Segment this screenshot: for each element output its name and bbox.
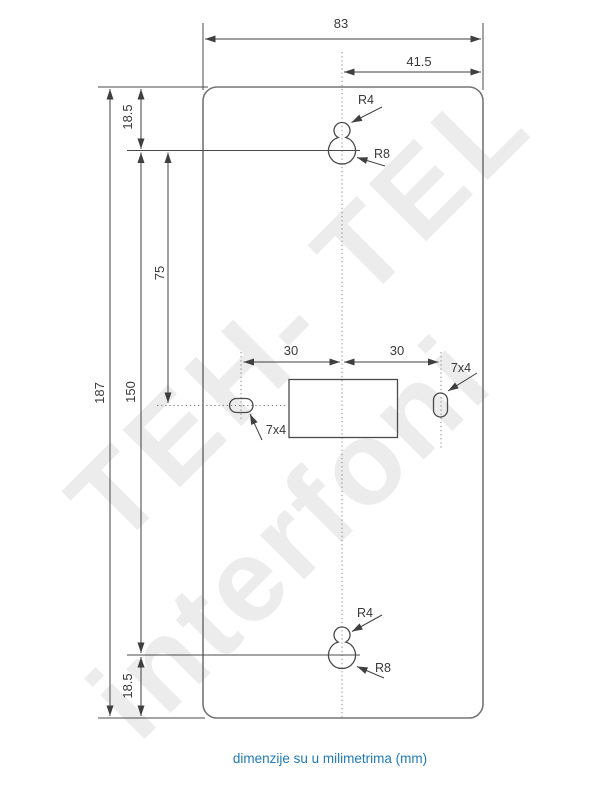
callout-right-slot-size: 7x4 <box>451 361 471 375</box>
drawing-canvas: TEH- TEL interfoni 83 41.5 187 <box>0 0 600 800</box>
leader-left-slot <box>250 414 262 440</box>
dim-label-center-to-right: 41.5 <box>406 54 431 69</box>
callout-bottom-keyhole-small: R4 <box>357 606 373 620</box>
dim-label-keyhole-spacing: 150 <box>123 381 138 403</box>
callout-left-slot-size: 7x4 <box>266 423 286 437</box>
callout-top-keyhole-large: R8 <box>374 147 390 161</box>
leader-top-keyhole-small <box>352 107 383 123</box>
dimension-drawing: 83 41.5 187 18.5 150 18.5 75 30 30 7x4 <box>0 0 600 800</box>
dim-label-bottom-keyhole-offset: 18.5 <box>120 673 135 698</box>
callout-bottom-keyhole-large: R8 <box>375 661 391 675</box>
right-oblong-slot <box>434 393 448 417</box>
units-caption: dimenzije su u milimetrima (mm) <box>30 751 600 766</box>
callout-top-keyhole-small: R4 <box>358 93 374 107</box>
dim-label-center-to-right-slot: 30 <box>390 343 404 358</box>
dim-label-top-keyhole-offset: 18.5 <box>120 104 135 129</box>
leader-right-slot <box>448 373 477 391</box>
dim-label-overall-width: 83 <box>334 16 348 31</box>
rectangular-cutout <box>289 380 398 438</box>
dim-label-keyhole-to-slots: 75 <box>152 266 167 280</box>
dim-label-overall-height: 187 <box>92 382 107 404</box>
dim-label-left-slot-to-center: 30 <box>284 343 298 358</box>
